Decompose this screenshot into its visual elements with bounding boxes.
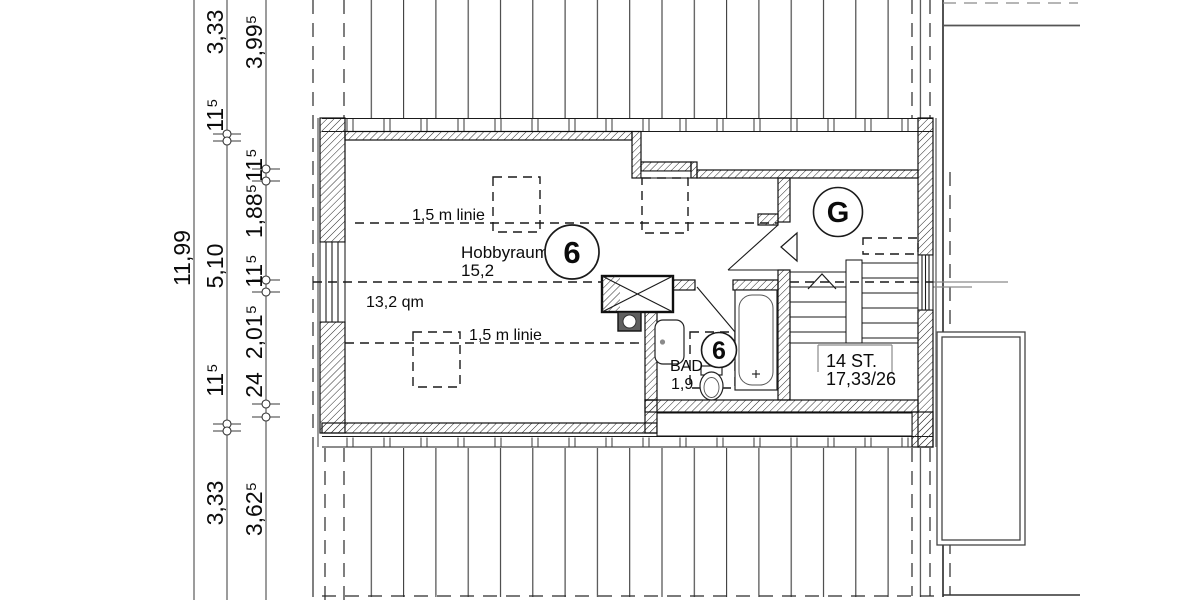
room-label-bad: BAD (670, 358, 703, 375)
dim-mid-0: 3,33 (202, 10, 228, 55)
roof-bottom-rafters (322, 433, 943, 597)
dim-mid-4: 3,33 (202, 481, 228, 526)
toilet (700, 366, 723, 400)
stairs-ratio-label: 17,33/26 (826, 369, 896, 389)
dim-overall: 11,99 (169, 230, 195, 286)
dim-in-2: 1,88⁵ (241, 184, 267, 238)
gallery-letter: G (827, 197, 850, 229)
dim-in-4: 2,01⁵ (241, 305, 267, 359)
dim-mid-1: 11⁵ (202, 98, 228, 131)
dim-mid-3: 11⁵ (202, 363, 228, 396)
room-value-bad: 1,9 (671, 376, 693, 393)
floor-plan-canvas: 11,99 3,33 11⁵ 5,10 11⁵ 3,33 3,99⁵ 11⁵ 1… (0, 0, 1200, 600)
dim-in-5: 24 (241, 372, 267, 398)
vent-pipe (618, 312, 641, 331)
dim-in-3: 11⁵ (241, 254, 267, 287)
room-value-hobbyraum: 15,2 (461, 261, 494, 280)
dim-mid-2: 5,10 (202, 244, 228, 289)
dim-in-1: 11⁵ (241, 148, 267, 181)
roof-top-rafters (322, 0, 943, 132)
room-number-hobbyraum: 6 (563, 235, 580, 270)
bathtub (735, 290, 777, 390)
room-area-hobbyraum: 13,2 qm (366, 294, 424, 311)
stairs-count-label: 14 ST. (826, 351, 877, 371)
balcony-outline (937, 332, 1025, 545)
room-number-bad: 6 (712, 337, 726, 365)
chimney (602, 276, 673, 312)
height-line-label-top: 1,5 m linie (412, 207, 485, 224)
height-line-label-bottom: 1,5 m linie (469, 327, 542, 344)
room-label-hobbyraum: Hobbyraum (461, 243, 549, 262)
dim-in-0: 3,99⁵ (241, 15, 267, 69)
dim-in-6: 3,62⁵ (241, 482, 267, 536)
